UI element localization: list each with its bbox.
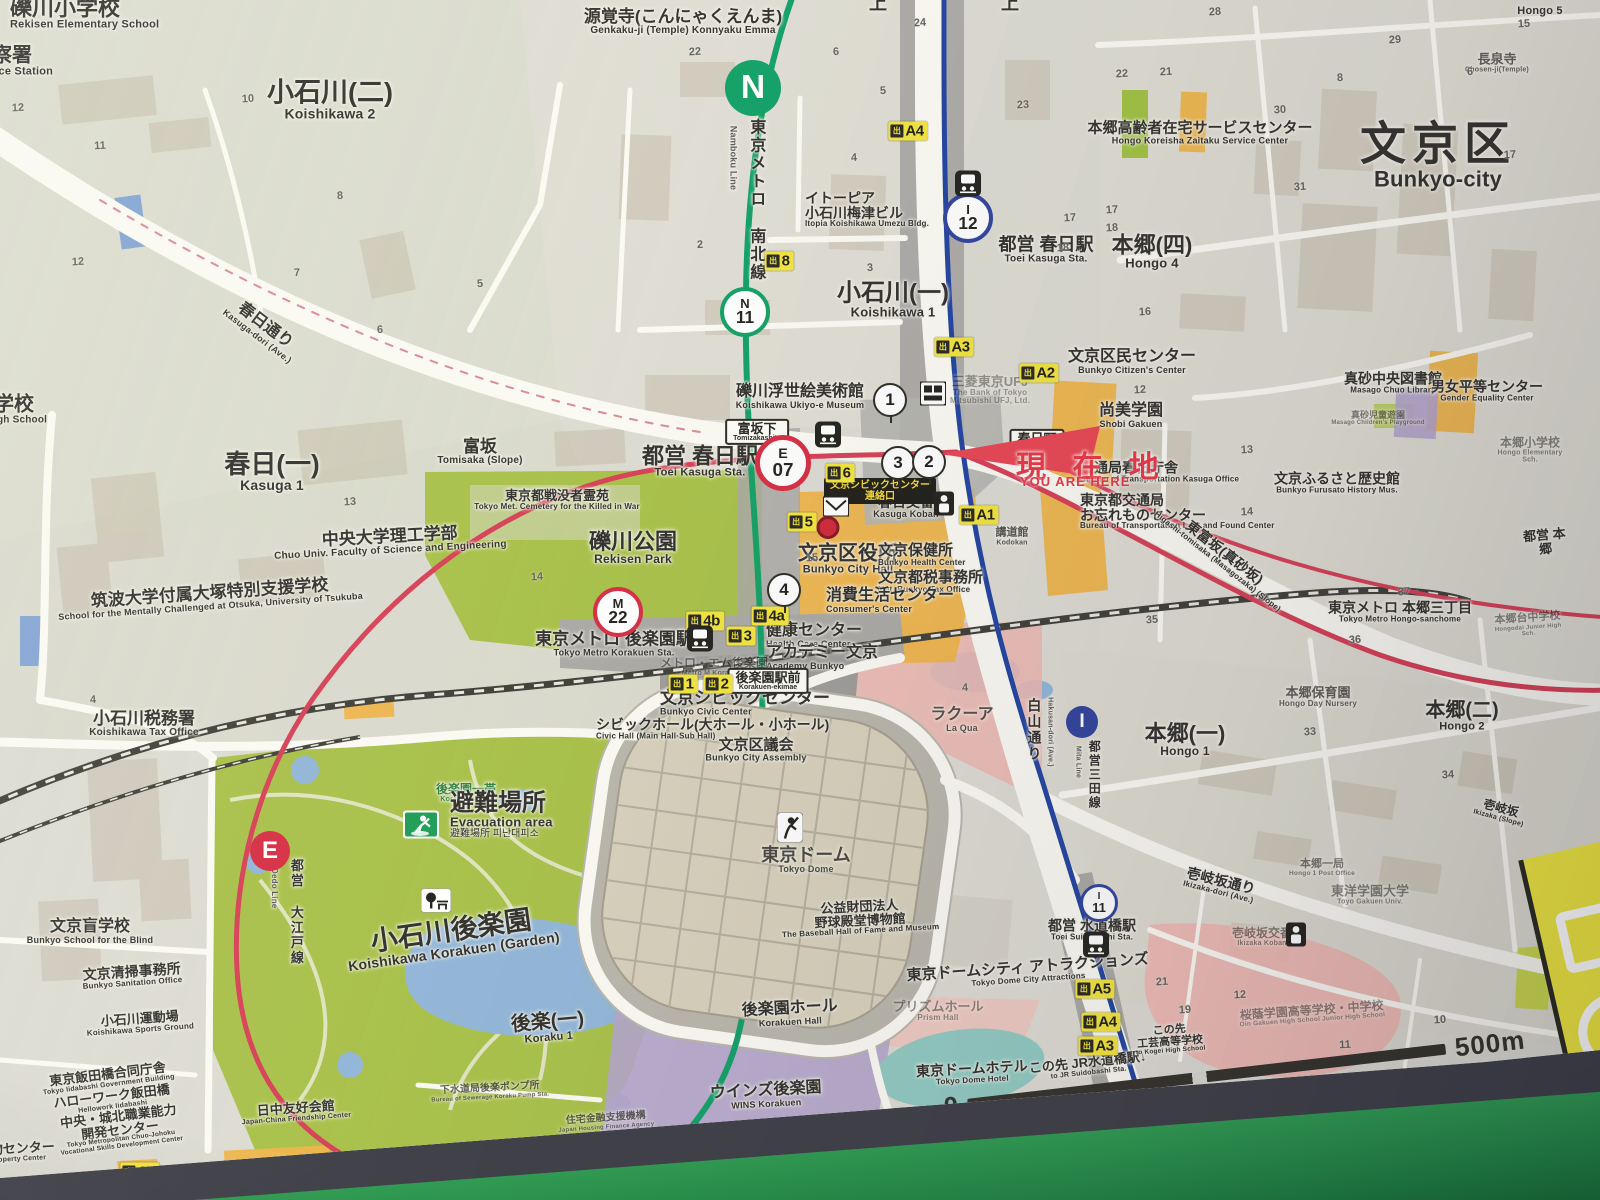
you-are-here-marker: 現 在 地 YOU ARE HERE (938, 418, 1238, 493)
scale-zero: 0 (942, 1090, 960, 1122)
to-kogei-high-school: この先 工芸高等学校to Kogei High School (1134, 1023, 1206, 1058)
consumers-center: 消費生活センターConsumer's Center (826, 588, 954, 614)
block-number: 12 (72, 256, 85, 269)
block-number: 21 (1156, 976, 1169, 989)
block-number: 13 (344, 496, 357, 509)
block-number: 3 (867, 262, 874, 274)
exit-badge-a3: 出A3 (934, 338, 973, 357)
exit-pictogram-icon: 出 (1080, 1040, 1093, 1053)
mita-line-logo: I (1066, 706, 1098, 738)
block-number: 12 (1234, 989, 1247, 1002)
exit-badge-c3: 出C3 (120, 1163, 159, 1182)
station-e07-kasuga: E07 (755, 435, 811, 491)
exit-badge-6: 出6 (826, 464, 855, 483)
block-number: 8 (1337, 72, 1344, 84)
block-number: 10 (1434, 1014, 1447, 1027)
exit-pictogram-icon: 出 (767, 255, 780, 268)
police-station-partial: 察署lice Station (0, 46, 53, 79)
exit-badge-8: 出8 (765, 252, 794, 271)
exit-badge-2: 出2 (704, 675, 733, 694)
block-number: 14 (531, 571, 544, 584)
masago-childrens-playground: 真砂児童遊園Masago Children's Playground (1331, 411, 1424, 427)
block-number: 6 (833, 46, 840, 58)
block-number: 33 (1304, 726, 1317, 739)
cropped-sign-glyph: 上 (869, 0, 887, 13)
block-number: 14 (1241, 506, 1254, 519)
cemetery-killed-in-war: 東京都戦没者霊苑Tokyo Met. Cemetery for the Kill… (474, 489, 640, 511)
tree-icon (421, 889, 451, 918)
koishikawa-korakuen-garden: 小石川後楽園Koishikawa Korakuen (Garden) (343, 902, 560, 974)
atm-icon (920, 382, 946, 411)
genkakuji-temple: 源覚寺(こんにゃくえんま)Genkaku-ji (Temple) Konnyak… (584, 8, 782, 36)
hakusan-dori-ave: 白山通り (1027, 698, 1042, 762)
exit-badge-a1: 出A1 (959, 506, 998, 525)
exit-pictogram-icon: 出 (754, 610, 767, 623)
la-qua: ラクーアLa Qua (930, 707, 993, 733)
hongo-5: Hongo 5 (1517, 6, 1562, 18)
oedo-line-logo: E (250, 831, 290, 871)
exit-circle-4: 4 (767, 573, 801, 607)
exit-pictogram-icon: 出 (936, 341, 949, 354)
evacuation-area: 避難場所Evacuation area避難場所 피난대피소 (450, 790, 553, 839)
block-number: 5 (477, 278, 484, 290)
train-icon (1083, 932, 1109, 963)
furusato-history-museum: 文京ふるさと歴史館Bunkyo Furusato History Mus. (1274, 471, 1400, 494)
station-n11-korakuen: N11 (720, 287, 770, 337)
block-number: 12 (1134, 384, 1147, 397)
korakuen-hall: 後楽園ホールKorakuen Hall (741, 998, 838, 1029)
tsukuba-school: 筑波大学付属大塚特別支援学校School for the Mentally Ch… (57, 574, 363, 623)
namboku-line-label: 東京メトロ 南北線 (747, 119, 764, 282)
block-number: 4 (90, 694, 97, 706)
block-number: 6 (377, 324, 384, 336)
namboku-line-logo: N (725, 60, 781, 116)
japan-china-friendship: 日中友好会館Japan-China Friendship Center (241, 1098, 352, 1127)
itopia-bldg: イトーピア 小石川梅津ビルItopia Koishikawa Umezu Bld… (805, 191, 929, 229)
station-i11-suidobashi: I11 (1080, 884, 1118, 922)
block-number: 18 (1106, 222, 1119, 235)
map-label-layer: 礫川小学校Rekisen Elementary School察署lice Sta… (0, 0, 1600, 1200)
bunkyo-city-assembly: 文京区議会Bunkyo City Assembly (705, 737, 806, 762)
police-icon (1286, 923, 1306, 952)
hongo-day-nursery: 本郷保育園Hongo Day Nursery (1279, 686, 1357, 708)
legend-glyph (1554, 894, 1600, 974)
block-number: 28 (1209, 6, 1222, 19)
batter-icon (777, 813, 803, 848)
housing-finance-agency: 住宅金融支援機構Japan Housing Finance Agency (557, 1110, 654, 1133)
block-number: 6 (1467, 66, 1474, 78)
toei-kasuga-sta-main: 都営 春日駅Toei Kasuga Sta. (642, 445, 758, 480)
you-are-here-subtext: YOU ARE HERE (1020, 474, 1130, 489)
block-number: 2 (697, 239, 704, 251)
oin-gakuen: 桜蔭学園高等学校・中学校Oin Gakuen High School Junio… (1239, 999, 1386, 1029)
block-number: 24 (914, 17, 927, 30)
mita-line-en: Mita Line (1074, 746, 1081, 778)
hongodai-junior: 本郷台中学校Hongodai Junior High Sch. (1491, 610, 1565, 639)
block-number: 18 (1057, 242, 1070, 255)
block-number: 4 (851, 152, 858, 164)
block-number: 22 (1116, 68, 1129, 81)
koraku-1: 後楽(一)Koraku 1 (510, 1009, 586, 1048)
block-number: 12 (12, 102, 25, 115)
cropped-sign-glyph: 上 (1001, 0, 1019, 13)
baseball-hall-of-fame: 公益財団法人 野球殿堂博物館The Baseball Hall of Fame … (780, 896, 939, 940)
block-number: 37 (1398, 586, 1411, 599)
rekisen-elementary-school: 礫川小学校Rekisen Elementary School (10, 0, 159, 31)
exit-pictogram-icon: 出 (706, 678, 719, 691)
tomisaka-slope: 富坂Tomisaka (Slope) (437, 438, 522, 466)
block-number: 4 (962, 682, 969, 694)
block-number: 16 (1139, 306, 1152, 319)
exit-pictogram-icon: 出 (828, 467, 841, 480)
block-number: 23 (1017, 99, 1030, 112)
oedo-line-label: 都営 大江戸線 (289, 859, 303, 966)
exit-pictogram-icon: 出 (122, 1166, 135, 1179)
ukiyoe-museum: 礫川浮世絵美術館Koishikawa Ukiyo-e Museum (736, 384, 865, 410)
exit-pictogram-icon: 出 (729, 630, 742, 643)
kasuga-1: 春日(一)Kasuga 1 (224, 451, 319, 493)
exit-badge-4a: 出4a (752, 607, 789, 626)
block-number: 8 (337, 190, 344, 202)
sewerage-pump-station: 下水道局後楽ポンプ所Bureau of Sewerage Koraku Pump… (431, 1081, 550, 1104)
exit-badge-a2: 出A2 (1019, 364, 1058, 383)
bunkyo-citizens-center: 文京区民センターBunkyo Citizen's Center (1068, 349, 1196, 375)
exit-badge-a4: 出A4 (1081, 1013, 1120, 1032)
oedo-line-en: Oedo Line (270, 868, 278, 909)
high-school-partial: 学校igh School (0, 394, 47, 426)
kodokan: 講道館Kodokan (996, 528, 1029, 547)
station-m22-korakuen: M22 (593, 587, 643, 637)
exit-badge-a3: 出A3 (1078, 1037, 1117, 1056)
bunkyo-school-blind: 文京盲学校Bunkyo School for the Blind (27, 919, 153, 945)
exit-badge-3: 出3 (727, 627, 756, 646)
chosenji-temple: 長泉寺Chosen-ji(Temple) (1465, 53, 1529, 74)
exit-pictogram-icon: 出 (961, 509, 974, 522)
block-number: 21 (1160, 66, 1173, 79)
toyo-gakuen-univ: 東洋学園大学Toyo Gakuen Univ. (1331, 885, 1409, 906)
block-number: 22 (689, 46, 702, 59)
police-icon (934, 492, 954, 521)
exit-pictogram-icon: 出 (1083, 1016, 1096, 1029)
hongo-1-post-office: 本郷一局Hongo 1 Post Office (1289, 859, 1355, 877)
kasuga-dori-ave: 春日通りKasuga-dori (Ave.) (221, 294, 303, 365)
block-number: 17 (1064, 212, 1077, 225)
train-icon (955, 171, 981, 202)
block-number: 15 (806, 552, 819, 565)
toei-kasuga-sta-north: 都営 春日駅Toei Kasuga Sta. (998, 235, 1093, 264)
exit-badge-5: 出5 (788, 513, 817, 532)
ikizaka-slope: 壱岐坂Ikizaka (Slope) (1472, 796, 1527, 829)
hongo-elementary: 本郷小学校Hongo Elementary Sch. (1495, 436, 1565, 463)
exit-badge-a4: 出A4 (888, 122, 927, 141)
korakuen-ekimae-sign: 後楽園駅前Korakuen-ekimae (727, 668, 808, 694)
koishikawa-1: 小石川(一)Koishikawa 1 (837, 281, 949, 320)
block-number: 29 (1389, 34, 1402, 47)
hakusan-dori-en: Hakusan-dori (Ave.) (1046, 697, 1053, 767)
koishikawa-2: 小石川(二)Koishikawa 2 (267, 78, 393, 121)
hongo-koreisha-center: 本郷高齢者在宅サービスセンターHongo Koreisha Zaitaku Se… (1087, 120, 1312, 145)
ikizaka-dori-ave: 壱岐坂通りIkizaka-dori (Ave.) (1182, 865, 1257, 905)
hongo-2: 本郷(二)Hongo 2 (1425, 701, 1498, 734)
exit-circle-1: 1 (873, 383, 907, 417)
bank-tokyo-mitsubishi: 三菱東京UFJThe Bank of Tokyo Mitsubishi UFJ,… (950, 375, 1030, 405)
koishikawa-sports-ground: 小石川運動場Koishikawa Sports Ground (86, 1008, 195, 1037)
bunkyo-health-center: 文京保健所Bunkyo Health Center (878, 543, 966, 567)
block-number: 15 (1518, 18, 1531, 31)
namboku-line-en: Namboku Line (728, 126, 737, 190)
masago-chuo-library: 真砂中央図書館Masago Chuo Library (1344, 371, 1442, 394)
train-icon (815, 422, 841, 453)
exit-pictogram-icon: 出 (671, 678, 684, 691)
block-number: 30 (1274, 104, 1287, 117)
exit-pictogram-icon: 出 (790, 516, 803, 529)
metro-hongo-sanchome: 東京メトロ 本郷三丁目Tokyo Metro Hongo-sanchome (1328, 600, 1472, 623)
block-number: 10 (242, 93, 255, 106)
legend-glyph (1570, 985, 1600, 1079)
bunkyo-city-title: 文京区Bunkyo-city (1360, 119, 1516, 190)
tokyo-dome: 東京ドームTokyo Dome (761, 846, 850, 874)
exit-circle-3: 3 (881, 446, 915, 480)
block-number: 34 (1442, 769, 1455, 782)
ikizaka-koban: 壱岐坂交番Ikizaka Koban (1232, 927, 1292, 947)
block-number: 17 (1504, 149, 1517, 162)
gender-equality-center: 男女平等センターGender Equality Center (1431, 379, 1543, 402)
exit-pictogram-icon: 出 (1021, 367, 1034, 380)
wins-korakuen: ウインズ後楽園WINS Korakuen (710, 1080, 823, 1112)
exit-pictogram-icon: 出 (890, 125, 903, 138)
exit-badge-a5: 出A5 (1075, 980, 1114, 999)
lost-property-partial: 物センターProperty Center (0, 1140, 56, 1164)
block-number: 31 (1294, 181, 1307, 194)
chuo-univ: 中央大学理工学部Chuo Univ. Faculty of Science an… (273, 522, 507, 562)
exit-pictogram-icon: 出 (1077, 983, 1090, 996)
evac-icon (403, 811, 439, 844)
exit-badge-1: 出1 (669, 675, 698, 694)
block-number: 19 (1179, 1004, 1192, 1017)
hongo-4: 本郷(四)Hongo 4 (1112, 234, 1193, 271)
prism-hall: プリズムホールPrism Hall (892, 1000, 983, 1022)
block-number: 7 (294, 267, 301, 279)
bunkyo-sanitation-office: 文京清掃事務所Bunkyo Sanitation Office (81, 961, 182, 991)
toei-hongo-partial: 都営 本郷 (1516, 526, 1573, 558)
koishikawa-tax-office: 小石川税務署Koishikawa Tax Office (89, 710, 199, 738)
mita-line-label: 都営三田線 (1088, 740, 1101, 810)
map-sheet: 礫川小学校Rekisen Elementary School察署lice Sta… (0, 0, 1600, 1200)
rekisen-park: 礫川公園Rekisen Park (589, 530, 677, 566)
station-area-map-photo: 礫川小学校Rekisen Elementary School察署lice Sta… (0, 0, 1600, 1200)
block-number: 35 (1146, 614, 1159, 627)
block-number: 36 (1349, 634, 1362, 647)
block-number: 5 (880, 85, 887, 97)
reddot-icon (816, 516, 840, 545)
block-number: 13 (1241, 444, 1254, 457)
block-number: 11 (94, 140, 106, 153)
hongo-1: 本郷(一)Hongo 1 (1145, 722, 1226, 758)
train-icon (687, 626, 713, 657)
block-number: 17 (1106, 204, 1119, 217)
